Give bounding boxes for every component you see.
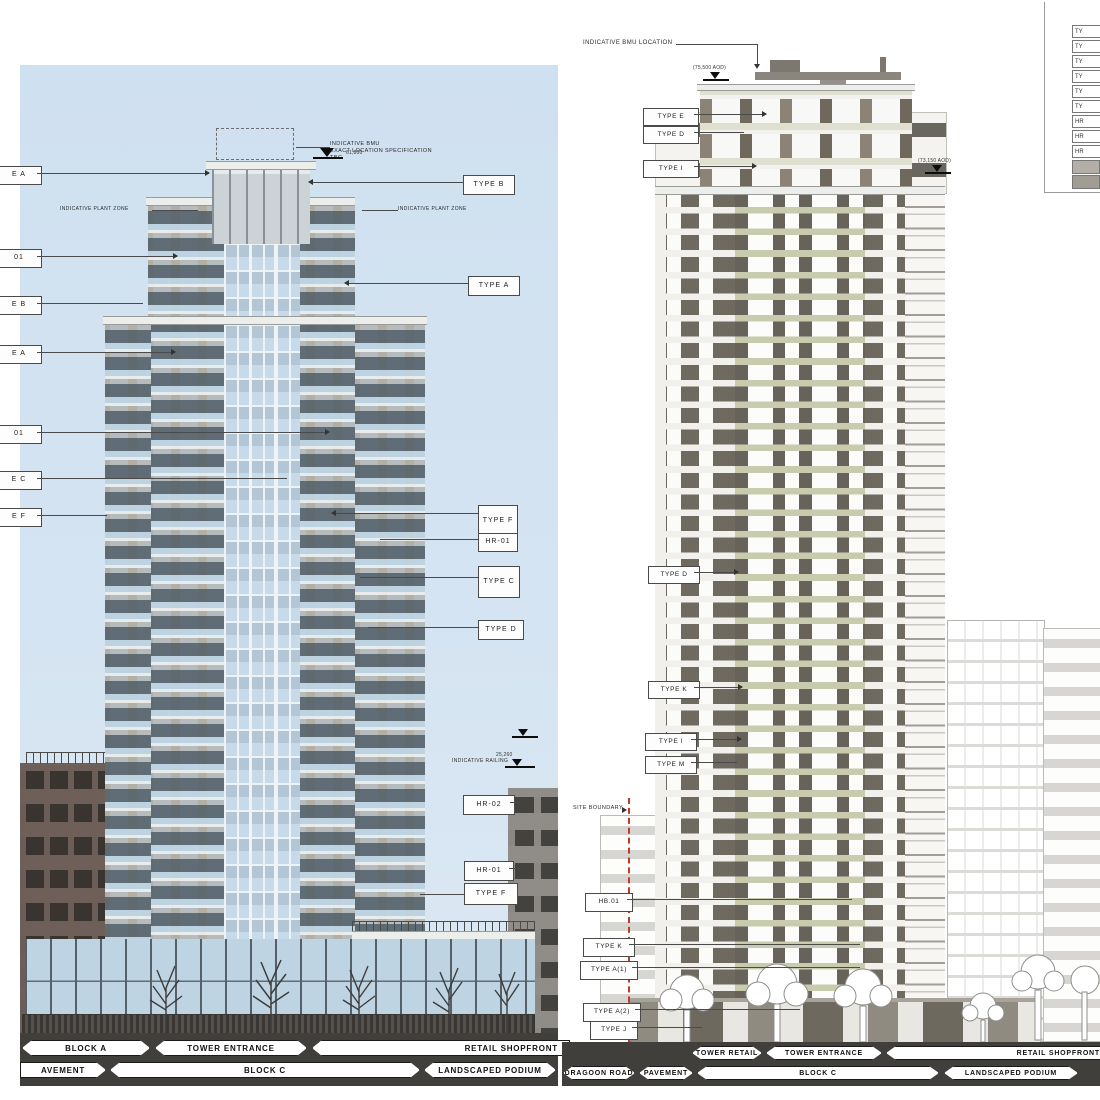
banner-dragoon-road: DRAGOON ROAD [563, 1066, 635, 1080]
type-c-leader [360, 577, 478, 578]
street-tree [248, 952, 294, 1034]
legend-swatch [1072, 175, 1100, 189]
plant-zone-leader-left [152, 210, 198, 211]
legend-item: TY [1072, 40, 1100, 53]
bmu-note-leader-h [676, 44, 757, 45]
banner-tower-entrance: TOWER ENTRANCE [155, 1040, 307, 1056]
legend-item: TY [1072, 70, 1100, 83]
railing-level-value: 25,260 [496, 752, 513, 758]
leader-arrow [308, 179, 313, 185]
legend-item: TY [1072, 25, 1100, 38]
type-b-leader [312, 182, 463, 183]
legend-item: HR [1072, 115, 1100, 128]
level-marker-line [925, 172, 951, 174]
level-left-value: (75,500 AOD) [693, 65, 726, 71]
hr01-leader [380, 539, 478, 540]
right-tower-top-block [700, 88, 912, 192]
right-tower-center-bay [735, 192, 865, 1035]
edge-leader [37, 515, 107, 516]
indicative-railing-note: INDICATIVE RAILING [452, 758, 512, 765]
hr02-leader [510, 802, 520, 803]
plant-zone-note-right: INDICATIVE PLANT ZONE [398, 206, 493, 213]
type-f-lower-label: TYPE F [464, 883, 518, 905]
type-m-leader [691, 762, 737, 763]
street-tree [338, 958, 380, 1034]
level-marker [512, 759, 522, 766]
level-marker [932, 165, 942, 172]
level-marker [710, 72, 720, 79]
right-tower-left-pier [655, 192, 666, 1035]
bmu-indicative-dashed-outline [216, 128, 294, 160]
legend-item: TY [1072, 100, 1100, 113]
banner-block-c-r: BLOCK C [697, 1066, 939, 1080]
bmu-note-arrow [754, 64, 760, 69]
leader-arrow [752, 163, 757, 169]
type-e-label: TYPE E [643, 108, 699, 126]
type-a1-leader [632, 967, 860, 968]
level-marker [518, 729, 528, 736]
street-tree [428, 960, 470, 1034]
core-mullion [249, 243, 251, 959]
legend-item: TY [1072, 55, 1100, 68]
edge-label-type-f: E F [0, 508, 42, 527]
level-marker-line [313, 157, 343, 159]
level-marker-line [703, 79, 729, 81]
leader-arrow [173, 253, 178, 259]
type-d-label: TYPE D [478, 620, 524, 640]
bmu-note-leader-v [757, 44, 758, 64]
banner-pavement-r: PAVEMENT [639, 1066, 693, 1080]
banner-retail-shopfront-r: RETAIL SHOPFRONT [886, 1046, 1100, 1060]
type-f-lower-leader [420, 894, 464, 895]
edge-label-type-c: E C [0, 471, 42, 490]
type-e-leader [694, 114, 766, 115]
type-i-mid-label: TYPE I [645, 733, 697, 751]
banner-block-a: BLOCK A [22, 1040, 150, 1056]
type-k-lower-leader [629, 944, 860, 945]
plant-room-parapet [206, 161, 316, 170]
tower-shoulder-parapet [103, 316, 427, 325]
street-tree [488, 964, 526, 1034]
type-k-mid-label: TYPE K [648, 681, 700, 699]
banner-landscaped-podium-r: LANDSCAPED PODIUM [944, 1066, 1078, 1080]
edge-label-type-a: E A [0, 166, 42, 185]
type-d-leader [368, 627, 478, 628]
edge-label-hr01b: 01 [0, 425, 42, 444]
leader-arrow [344, 280, 349, 286]
edge-label-type-b: E B [0, 296, 42, 315]
leader-arrow [737, 736, 742, 742]
plant-zone-leader-right [362, 210, 398, 211]
edge-leader [37, 432, 329, 433]
banner-retail-shopfront: RETAIL SHOPFRONT [312, 1040, 570, 1056]
type-i-mid-leader [691, 739, 741, 740]
bmu-crane-arm [755, 72, 901, 80]
street-tree [145, 958, 187, 1034]
leader-arrow [738, 684, 743, 690]
hr01-lower-label: HR-01 [464, 861, 514, 881]
banner-landscaped-podium: LANDSCAPED PODIUM [424, 1062, 556, 1078]
legend-item: HR [1072, 145, 1100, 158]
legend-item: TY [1072, 85, 1100, 98]
type-a2-leader [635, 1009, 800, 1010]
banner-pavement: AVEMENT [20, 1062, 106, 1078]
type-i-upper-label: TYPE I [643, 160, 699, 178]
type-b-label: TYPE B [463, 175, 515, 195]
white-tree [742, 958, 812, 1042]
tower-left-wing [105, 322, 151, 1035]
type-a2-label: TYPE A(2) [583, 1003, 641, 1022]
white-shrub [958, 986, 1008, 1042]
edge-leader [37, 303, 143, 304]
top-block-right-wing [911, 112, 947, 194]
type-d-upper-leader [694, 132, 744, 133]
level-right-value: (73,150 AOD) [918, 158, 951, 164]
core-mullion [274, 243, 276, 959]
banner-block-c: BLOCK C [110, 1062, 420, 1078]
right-tower-balcony-strip [905, 192, 945, 1035]
type-a1-label: TYPE A(1) [580, 961, 638, 980]
white-tree [830, 962, 896, 1042]
right-tower-top-parapet [697, 84, 915, 91]
type-a-label: TYPE A [468, 276, 520, 296]
type-j-leader [632, 1027, 702, 1028]
edge-leader [37, 173, 209, 174]
plant-zone-note-left: INDICATIVE PLANT ZONE [60, 206, 155, 213]
banner-tower-entrance-r: TOWER ENTRANCE [766, 1046, 882, 1060]
white-tree [655, 968, 719, 1042]
type-d-mid-label: TYPE D [648, 566, 700, 584]
type-i-upper-leader [694, 166, 756, 167]
architectural-elevation-sheet: INDICATIVE BMU EXACT LOCATION SPECIFICAT… [0, 0, 1100, 1100]
level-marker-line [505, 766, 535, 768]
edge-leader [37, 256, 177, 257]
leader-arrow [205, 170, 210, 176]
bmu-mast [880, 57, 886, 72]
edge-leader [37, 352, 175, 353]
hb01-label: HB.01 [585, 893, 633, 912]
white-tree [1062, 960, 1100, 1042]
legend-swatch [1072, 160, 1100, 174]
level-marker-61800 [320, 148, 334, 157]
banner-tower-retail: TOWER RETAIL [692, 1046, 762, 1060]
edge-leader [37, 478, 287, 479]
white-tree [1008, 948, 1068, 1042]
level-value: 61,800 [346, 150, 363, 156]
bmu-note-line1: INDICATIVE BMU [330, 141, 380, 147]
leader-arrow [325, 429, 330, 435]
site-boundary-arrow [622, 807, 627, 813]
type-a-leader [348, 283, 468, 284]
right-tower-shoulder-parapet [655, 186, 945, 195]
leader-arrow [762, 111, 767, 117]
leader-arrow [171, 349, 176, 355]
leader-arrow [734, 569, 739, 575]
hr01-lower-leader [509, 868, 520, 869]
type-f-leader [335, 513, 478, 514]
type-j-label: TYPE J [590, 1021, 638, 1040]
type-d-upper-label: TYPE D [643, 126, 699, 144]
edge-label-hr01: 01 [0, 249, 42, 268]
hb01-leader [627, 899, 852, 900]
bmu-cabin [770, 60, 800, 72]
type-d-mid-leader [694, 572, 738, 573]
type-k-lower-label: TYPE K [583, 938, 635, 957]
hr01-label: HR-01 [478, 533, 518, 552]
type-c-label: TYPE C [478, 566, 520, 598]
rooftop-plant-room [212, 168, 310, 244]
level-marker-line [512, 736, 538, 738]
edge-label-type-a2: E A [0, 345, 42, 364]
type-k-mid-leader [694, 687, 742, 688]
legend-item: HR [1072, 130, 1100, 143]
hr02-label: HR-02 [463, 795, 515, 815]
tower-central-glazed-bay [224, 243, 300, 959]
type-m-label: TYPE M [645, 756, 697, 774]
leader-arrow [331, 510, 336, 516]
